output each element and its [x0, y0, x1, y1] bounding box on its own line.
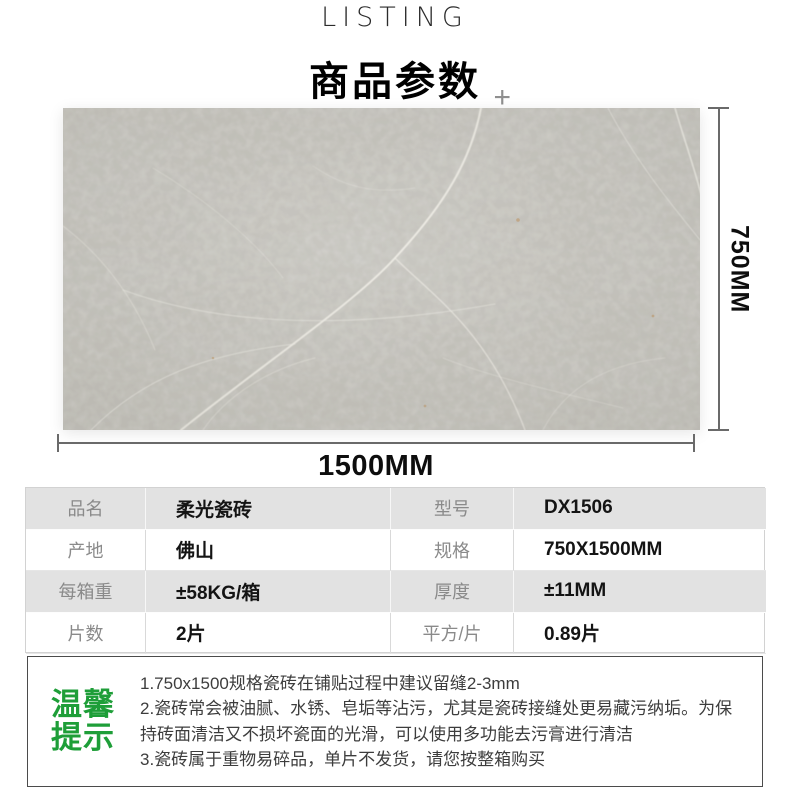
spec-value-model: DX1506 [514, 488, 766, 530]
spec-value-sqm-per-piece: 0.89片 [514, 613, 766, 655]
spec-value-origin: 佛山 [146, 530, 391, 572]
marble-texture [63, 108, 700, 430]
spec-label-thickness: 厚度 [391, 571, 514, 613]
warm-tips-heading-line2: 提示 [28, 722, 138, 755]
spec-value-thickness: ±11MM [514, 571, 766, 613]
width-dimension-label: 1500MM [57, 450, 695, 483]
spec-label-size: 规格 [391, 530, 514, 572]
spec-label-sqm-per-piece: 平方/片 [391, 613, 514, 655]
spec-value-size: 750X1500MM [514, 530, 766, 572]
spec-value-product-name: 柔光瓷砖 [146, 488, 391, 530]
listing-eyebrow: LISTING [0, 2, 790, 33]
spec-value-box-weight: ±58KG/箱 [146, 571, 391, 613]
tip-item-2: 2.瓷砖常会被油腻、水锈、皂垢等沾污，尤其是瓷砖接缝处更易藏污纳垢。为保持砖面清… [140, 696, 748, 747]
tip-item-1: 1.750x1500规格瓷砖在铺贴过程中建议留缝2-3mm [140, 671, 748, 697]
page-title-text: 商品参数 [309, 60, 481, 104]
warm-tips-heading-line1: 温馨 [28, 689, 138, 722]
warm-tips-body: 1.750x1500规格瓷砖在铺贴过程中建议留缝2-3mm 2.瓷砖常会被油腻、… [138, 663, 762, 781]
width-dimension-line [57, 442, 695, 444]
warm-tips-box: 温馨 提示 1.750x1500规格瓷砖在铺贴过程中建议留缝2-3mm 2.瓷砖… [27, 656, 763, 787]
spec-label-box-weight: 每箱重 [26, 571, 146, 613]
spec-value-piece-count: 2片 [146, 613, 391, 655]
height-dimension-line [718, 108, 720, 430]
page-title: 商品参数+ [309, 60, 481, 104]
tile-image [63, 108, 700, 430]
spec-label-origin: 产地 [26, 530, 146, 572]
tip-item-3: 3.瓷砖属于重物易碎品，单片不发货，请您按整箱购买 [140, 747, 748, 773]
spec-label-model: 型号 [391, 488, 514, 530]
warm-tips-heading: 温馨 提示 [28, 689, 138, 755]
height-dimension-label: 750MM [722, 108, 756, 430]
spec-label-product-name: 品名 [26, 488, 146, 530]
spec-table: 品名 柔光瓷砖 型号 DX1506 产地 佛山 规格 750X1500MM 每箱… [25, 487, 765, 653]
spec-label-piece-count: 片数 [26, 613, 146, 655]
